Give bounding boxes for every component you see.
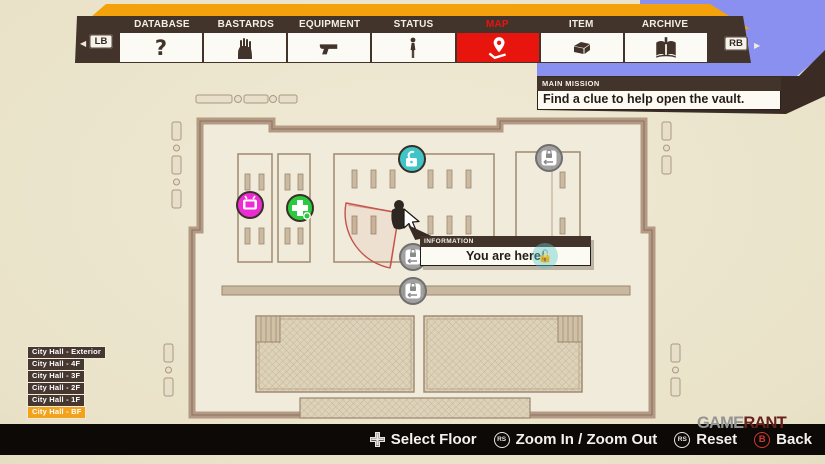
tab-equipment[interactable] [288,33,370,62]
tab-label-row: DATABASE BASTARDS EQUIPMENT STATUS MAP I… [120,19,707,32]
tab-bastards[interactable] [204,33,286,62]
mission-header: MAIN MISSION [537,77,781,91]
floor-list: City Hall - Exterior City Hall - 4F City… [28,347,105,418]
person-icon [401,35,425,61]
map-pin-icon [485,35,511,61]
next-tab-arrow-icon: ▶ [754,41,760,50]
floor-item-2f[interactable]: City Hall - 2F [28,383,84,394]
floor-item-1f[interactable]: City Hall - 1F [28,395,84,406]
select-floor-control[interactable]: Select Floor [370,431,477,448]
right-stick-press-icon: RS [674,432,690,448]
dpad-icon [370,432,385,447]
tab-status[interactable] [372,33,454,62]
lb-button[interactable]: LB [89,34,113,49]
zombie-hand-icon [233,36,257,60]
b-button-icon: B [754,432,770,448]
gamerant-watermark: GAMERANT [697,414,786,433]
item-box-icon [569,36,595,60]
tab-item[interactable] [541,33,623,62]
tab-label-status: STATUS [372,19,456,32]
zoom-label: Zoom In / Zoom Out [516,431,658,448]
floor-item-exterior[interactable]: City Hall - Exterior [28,347,105,358]
ghost-unlocked-marker: 🔓 [532,243,558,269]
watermark-rant: RANT [743,414,786,432]
info-popup: INFORMATION You are here! [420,236,591,266]
mission-panel: MAIN MISSION Find a clue to help open th… [537,77,781,110]
floor-item-4f[interactable]: City Hall - 4F [28,359,84,370]
tab-label-item: ITEM [539,19,623,32]
svg-text:?: ? [155,36,167,60]
question-icon: ? [149,35,173,61]
select-floor-label: Select Floor [391,431,477,448]
tab-strip: ? [120,33,707,62]
floor-item-bf-selected[interactable]: City Hall - BF [28,407,85,418]
right-stick-icon: RS [494,432,510,448]
prev-tab-arrow-icon: ◀ [80,39,86,48]
mission-text: Find a clue to help open the vault. [537,91,781,110]
tab-label-bastards: BASTARDS [204,19,288,32]
health-marker[interactable] [287,195,313,221]
tab-label-archive: ARCHIVE [623,19,707,32]
tab-label-database: DATABASE [120,19,204,32]
back-control[interactable]: B Back [754,431,812,448]
tab-database[interactable]: ? [120,33,202,62]
floor-item-3f[interactable]: City Hall - 3F [28,371,84,382]
tab-label-equipment: EQUIPMENT [288,19,372,32]
tab-archive[interactable] [625,33,707,62]
locked-door-marker[interactable] [400,278,426,304]
locked-door-marker[interactable] [536,145,562,171]
reset-label: Reset [696,431,737,448]
tab-label-map: MAP [455,19,539,32]
rb-button[interactable]: RB [724,36,748,51]
info-popup-text: You are here! [420,247,591,266]
tab-map[interactable] [457,33,539,62]
screen: DATABASE BASTARDS EQUIPMENT STATUS MAP I… [0,0,825,464]
zoom-control[interactable]: RS Zoom In / Zoom Out [494,431,658,448]
watermark-game: GAME [697,414,743,432]
info-popup-header: INFORMATION [420,236,591,247]
tv-marker[interactable] [237,192,263,218]
archive-book-icon [653,35,679,61]
reset-control[interactable]: RS Reset [674,431,737,448]
unlocked-door-marker[interactable] [399,146,425,172]
pistol-icon [316,37,342,59]
back-label: Back [776,431,812,448]
